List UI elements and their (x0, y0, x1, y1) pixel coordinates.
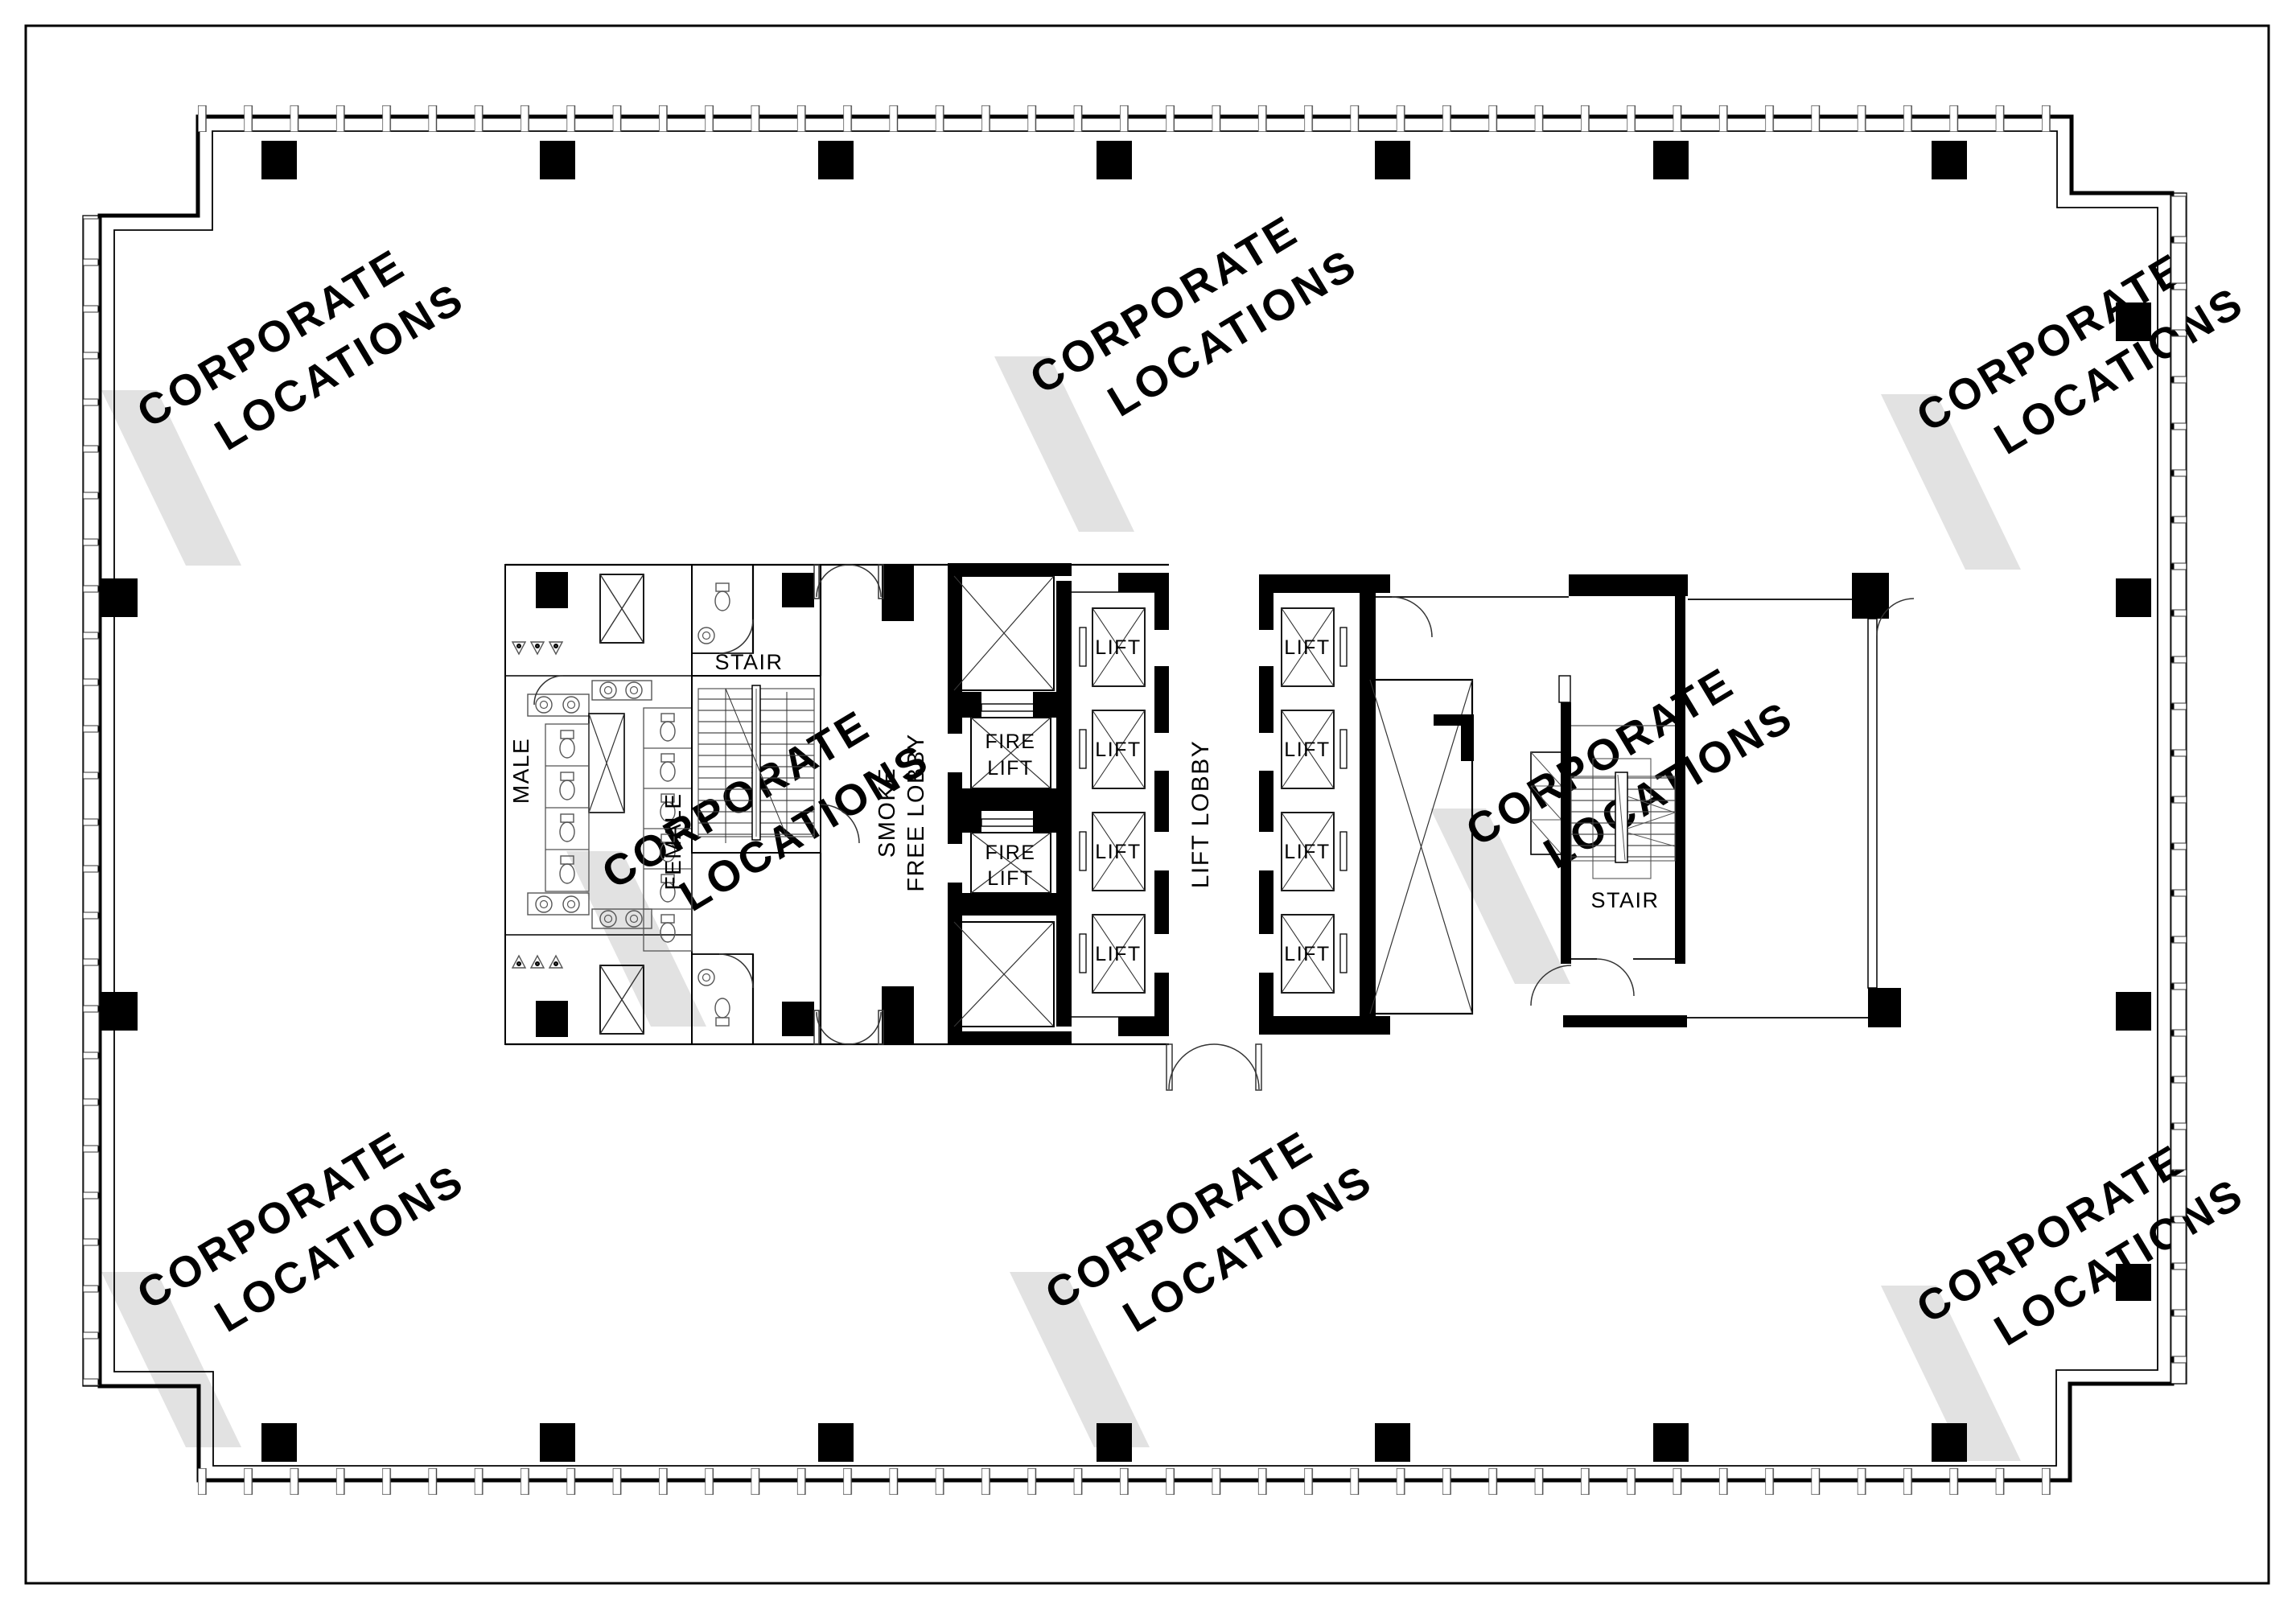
column (818, 141, 854, 179)
column (2116, 1264, 2151, 1301)
lift-car-label: LIFT (1095, 636, 1141, 659)
column (536, 572, 568, 608)
column (2116, 578, 2151, 617)
watermark: CORPORATE LOCATIONS (101, 223, 473, 566)
lift-car-label: LIFT (1095, 841, 1141, 863)
fire-lift-1-label-line1: FIRE (985, 730, 1036, 753)
bottom-mullion-band (198, 1468, 2072, 1495)
smoke-free-lobby-label-line2: FREE LOBBY (903, 733, 929, 891)
fire-lift-2-label-line1: FIRE (985, 842, 1036, 864)
lift-car-label: LIFT (1284, 739, 1330, 761)
watermark: CORPORATE LOCATIONS (1881, 227, 2253, 570)
column (1097, 1423, 1132, 1462)
floor-plan-canvas: CORPORATE LOCATIONS CORPORATE LOCATIONS … (0, 0, 2296, 1609)
column (261, 1423, 297, 1462)
lift-bank-left: LIFT LIFT LIFT LIFT (1072, 573, 1169, 1036)
column (1653, 1423, 1689, 1462)
watermark: CORPORATE LOCATIONS (101, 1105, 473, 1447)
column (2116, 302, 2151, 341)
right-glazing-strip (2171, 193, 2187, 1384)
column (1932, 1423, 1967, 1462)
column (1097, 141, 1132, 179)
stair-left (692, 676, 821, 853)
smoke-free-lobby-label-line1: SMOKE (874, 767, 900, 858)
lift-lobby-label: LIFT LOBBY (1187, 740, 1214, 889)
column (540, 1423, 575, 1462)
left-glazing-strip (83, 216, 100, 1386)
column (101, 992, 138, 1031)
watermark-layer: CORPORATE LOCATIONS CORPORATE LOCATIONS … (101, 189, 2253, 1461)
column (782, 573, 814, 607)
right-core (1370, 573, 1914, 1027)
fire-lift-1-label-line2: LIFT (987, 757, 1033, 780)
column (2116, 992, 2151, 1031)
lift-car-label: LIFT (1095, 943, 1141, 965)
watermark: CORPORATE LOCATIONS (1881, 1118, 2253, 1461)
lift-car-label: LIFT (1095, 739, 1141, 761)
column (536, 1001, 568, 1037)
female-label: FEMALE (660, 792, 685, 890)
column (540, 141, 575, 179)
stair-right-label: STAIR (1590, 888, 1659, 912)
column (818, 1423, 854, 1462)
fire-lift-block: FIRE LIFT FIRE LIFT (948, 563, 1072, 1044)
column (1375, 141, 1410, 179)
watermark: CORPORATE LOCATIONS (1010, 1105, 1381, 1447)
lift-lobby-doors (1167, 1044, 1261, 1090)
column (1653, 141, 1689, 179)
column (261, 141, 297, 179)
column (1932, 141, 1967, 179)
lift-car-label: LIFT (1284, 943, 1330, 965)
top-mullion-band (198, 105, 2072, 132)
column (1375, 1423, 1410, 1462)
lift-car-label: LIFT (1284, 636, 1330, 659)
watermark: CORPORATE LOCATIONS (994, 189, 1366, 532)
column (782, 1002, 814, 1036)
column (101, 578, 138, 617)
floor-plan-page: CORPORATE LOCATIONS CORPORATE LOCATIONS … (0, 0, 2296, 1609)
male-label: MALE (508, 738, 533, 804)
lift-car-label: LIFT (1284, 841, 1330, 863)
fire-lift-2-label-line2: LIFT (987, 867, 1033, 890)
